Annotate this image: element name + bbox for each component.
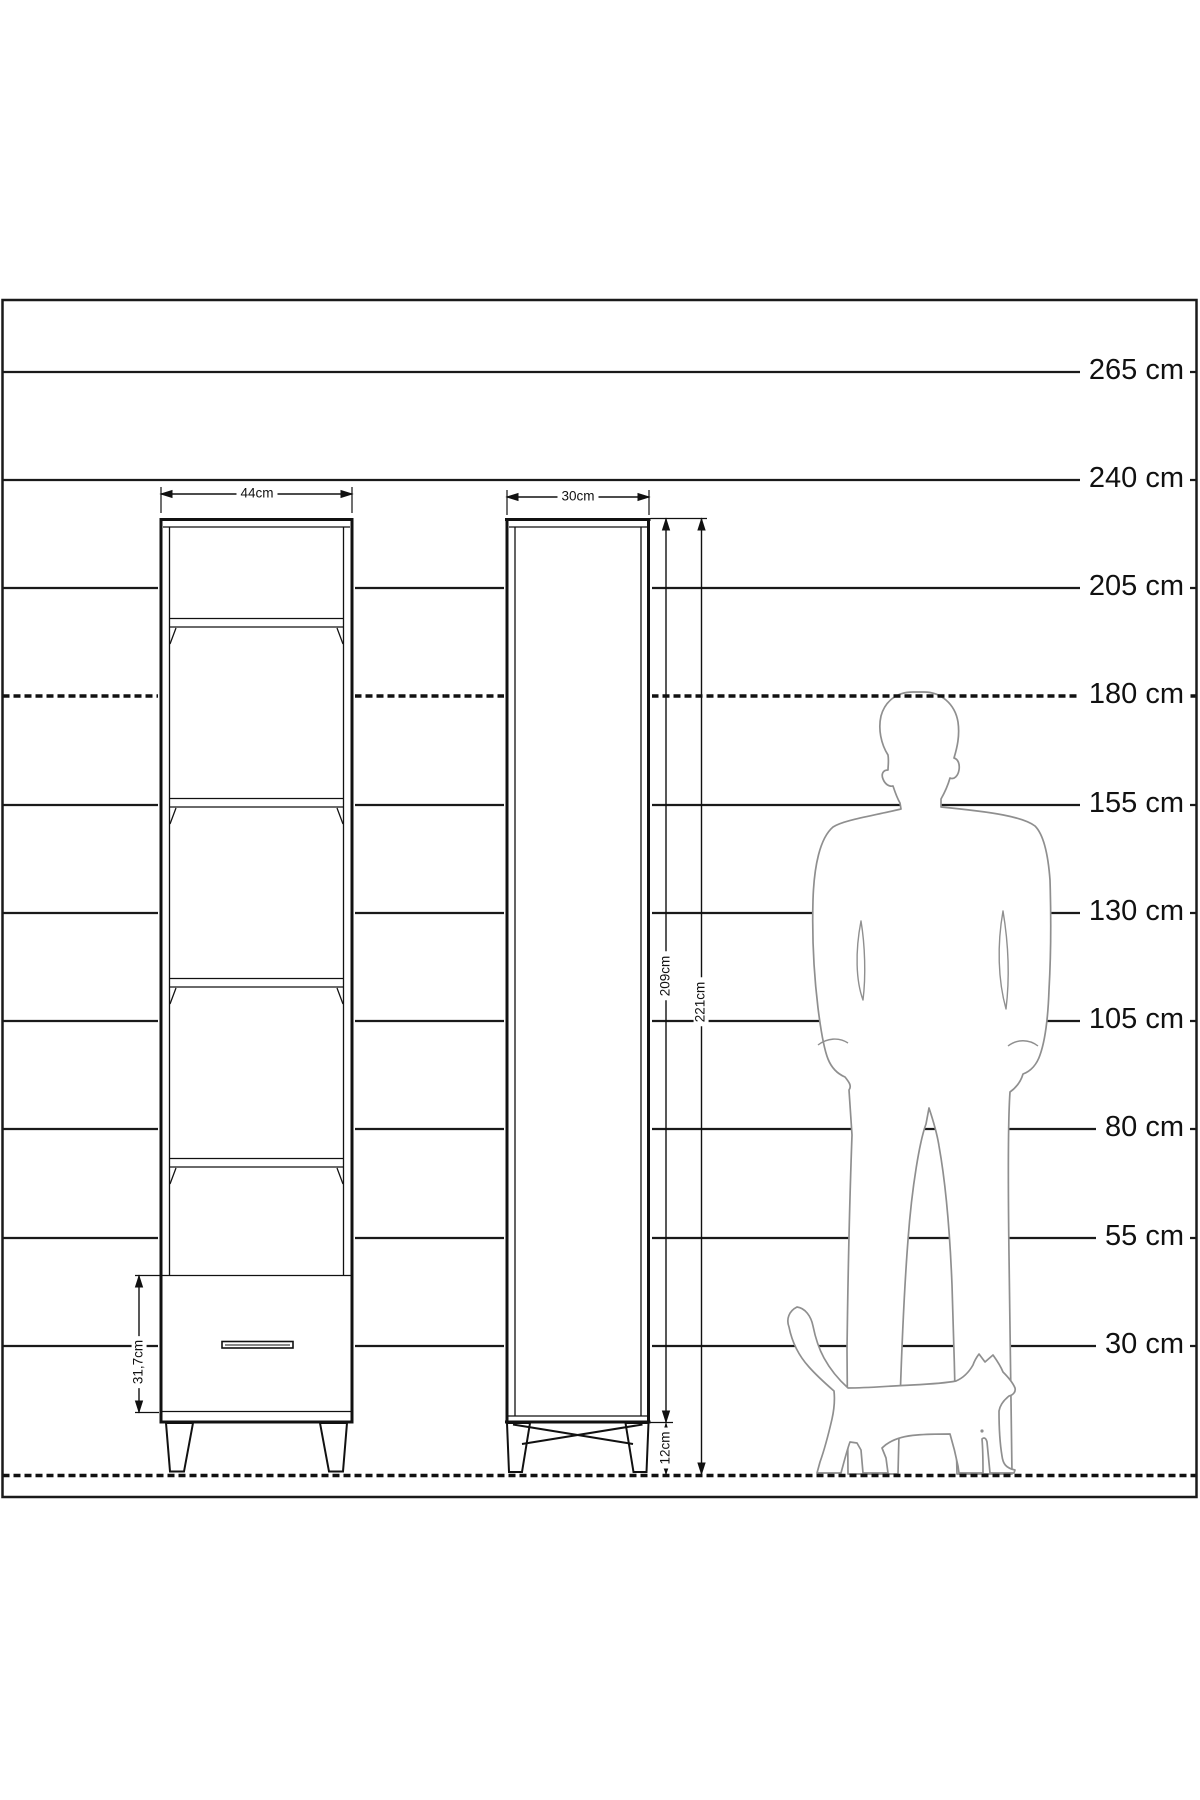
drawer-handle: [222, 1342, 293, 1349]
depth-dim-label: 30cm: [557, 490, 598, 505]
ruler-label-205: 205 cm: [1080, 571, 1190, 604]
leg-height-dim-label: 12cm: [659, 1427, 674, 1468]
drawer-height-dim-label: 31,7cm: [132, 1336, 147, 1388]
diagram-linework: [0, 0, 1200, 1800]
ruler-label-80: 80 cm: [1096, 1112, 1190, 1145]
front-view-cabinet: [158, 517, 355, 1472]
total-height-dim-label: 221cm: [694, 978, 709, 1027]
width-dim-label: 44cm: [236, 487, 277, 502]
ruler-label-265: 265 cm: [1080, 355, 1190, 388]
side-view-cabinet: [504, 517, 652, 1472]
ruler-label-155: 155 cm: [1080, 788, 1190, 821]
ruler-label-240: 240 cm: [1080, 463, 1190, 496]
ruler-label-130: 130 cm: [1080, 896, 1190, 929]
side-view-legs: [507, 1423, 649, 1472]
dimension-diagram: 265 cm 240 cm 205 cm 180 cm 155 cm 130 c…: [0, 0, 1200, 1800]
man-silhouette: [813, 692, 1051, 1474]
cat-thigh-dot: [980, 1429, 983, 1432]
ruler-label-105: 105 cm: [1080, 1004, 1190, 1037]
ruler-label-55: 55 cm: [1096, 1221, 1190, 1254]
ruler-label-180: 180 cm: [1080, 679, 1190, 712]
body-height-dim-label: 209cm: [659, 952, 674, 1001]
front-view-legs: [166, 1423, 347, 1472]
ruler-label-30: 30 cm: [1096, 1329, 1190, 1362]
